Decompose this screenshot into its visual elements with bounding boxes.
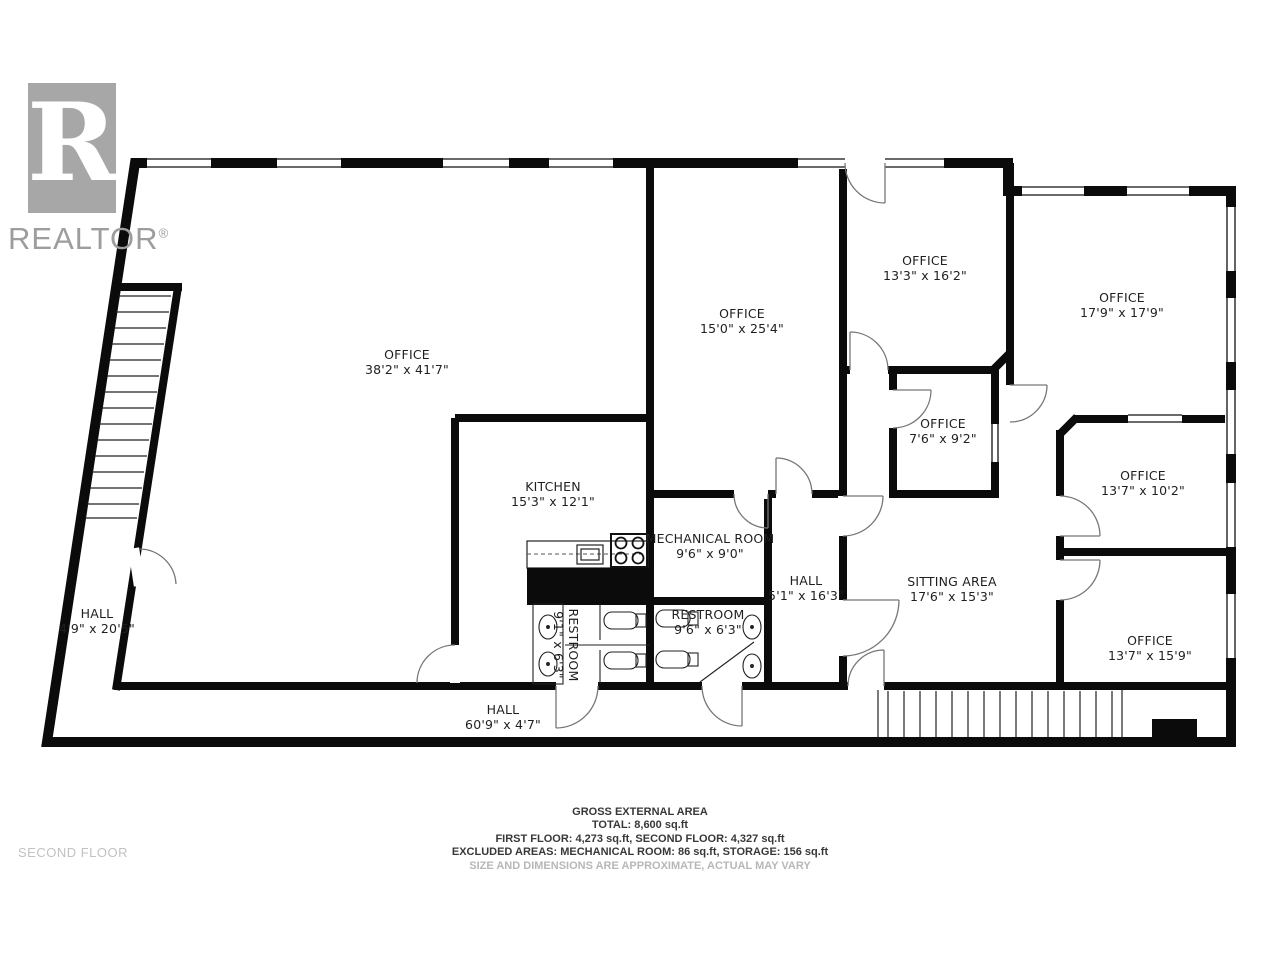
area-disclaimer: SIZE AND DIMENSIONS ARE APPROXIMATE, ACT… — [0, 860, 1280, 873]
window-top-3 — [443, 157, 509, 169]
window-office-13-10 — [1128, 413, 1182, 424]
kitchen-fixtures — [527, 534, 648, 601]
room-label-sitting-area: SITTING AREA 17'6" x 15'3" — [907, 574, 996, 604]
room-label-office-13-15: OFFICE 13'7" x 15'9" — [1108, 633, 1192, 663]
outer-walls — [47, 163, 1231, 742]
window-office-small — [990, 424, 1000, 462]
room-label-kitchen: KITCHEN 15'3" x 12'1" — [511, 479, 595, 509]
area-summary: GROSS EXTERNAL AREA TOTAL: 8,600 sq.ft F… — [0, 806, 1280, 873]
area-total: TOTAL: 8,600 sq.ft — [0, 819, 1280, 832]
room-label-restroom-right: RESTROOM 9'6" x 6'3" — [672, 607, 745, 637]
area-excluded: EXCLUDED AREAS: MECHANICAL ROOM: 86 sq.f… — [0, 846, 1280, 859]
stall-door — [700, 642, 754, 682]
room-label-hall-bottom: HALL 60'9" x 4'7" — [465, 702, 541, 732]
window-topright-1 — [1022, 185, 1084, 197]
window-right-3 — [1225, 390, 1237, 454]
room-label-office-17-17: OFFICE 17'9" x 17'9" — [1080, 290, 1164, 320]
logo-letter: R — [27, 80, 117, 206]
window-top-2 — [277, 157, 341, 169]
area-summary-title: GROSS EXTERNAL AREA — [0, 806, 1280, 819]
storage-block — [1152, 719, 1197, 743]
area-floors: FIRST FLOOR: 4,273 sq.ft, SECOND FLOOR: … — [0, 833, 1280, 846]
room-label-office-7-9: OFFICE 7'6" x 9'2" — [909, 416, 977, 446]
registered-mark: ® — [159, 226, 170, 241]
window-right-2 — [1225, 298, 1237, 362]
toilet-icon — [604, 652, 646, 669]
realtor-logo: R REALTOR® — [28, 83, 169, 257]
room-label-office-13-10: OFFICE 13'7" x 10'2" — [1101, 468, 1185, 498]
kitchen-shaft-block — [527, 568, 648, 601]
realtor-wordmark: REALTOR® — [8, 221, 169, 257]
realtor-logo-mark-icon: R — [28, 83, 116, 213]
toilet-icon — [656, 651, 698, 668]
room-label-hall-left: HALL 4'9" x 20'5" — [59, 606, 135, 636]
room-label-office-13-16: OFFICE 13'3" x 16'2" — [883, 253, 967, 283]
windows — [147, 157, 1237, 658]
floor-label: SECOND FLOOR — [18, 845, 128, 860]
window-topright-2 — [1127, 185, 1189, 197]
room-label-office-main: OFFICE 38'2" x 41'7" — [365, 347, 449, 377]
room-label-restroom-left: RESTROOM 9'1" x 6'3" — [551, 609, 581, 682]
window-right-1 — [1225, 207, 1237, 271]
window-right-4 — [1225, 483, 1237, 547]
window-right-5 — [1225, 594, 1237, 658]
lower-stairs — [878, 690, 1122, 738]
window-top-6 — [880, 157, 944, 169]
toilet-icon — [604, 612, 646, 629]
floorplan-page: OFFICE 38'2" x 41'7" OFFICE 15'0" x 25'4… — [0, 0, 1280, 960]
room-label-mechanical-room: MECHANICAL ROOM 9'6" x 9'0" — [646, 531, 775, 561]
window-top-4 — [549, 157, 613, 169]
room-label-office-center: OFFICE 15'0" x 25'4" — [700, 306, 784, 336]
room-label-hall-corridor: HALL 5'1" x 16'3" — [768, 573, 844, 603]
